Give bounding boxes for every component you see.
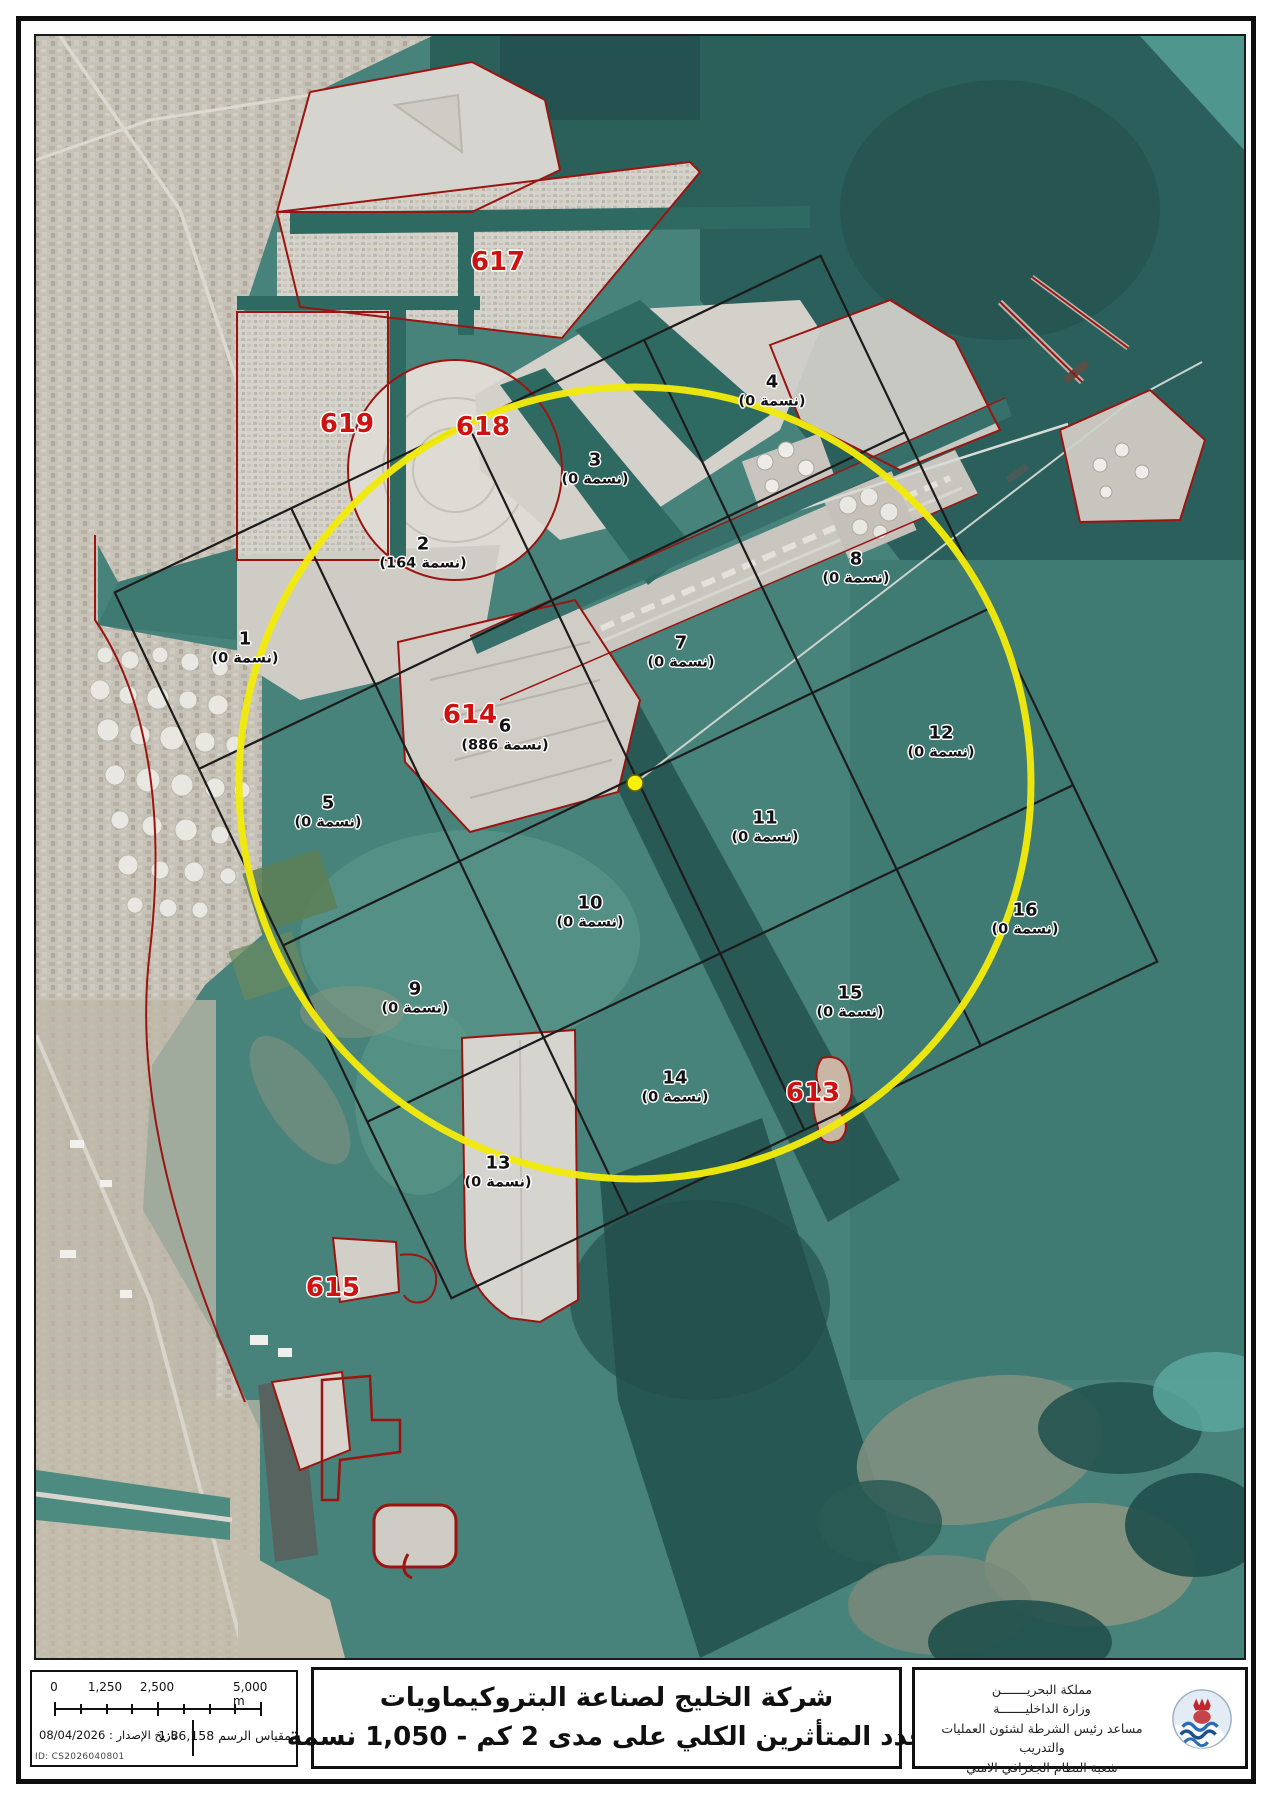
map-document-page: 1(نسمة 0)2(نسمة 164)3(نسمة 0)4(نسمة 0)5(… bbox=[0, 0, 1272, 1800]
outer-frame bbox=[16, 16, 1256, 1784]
